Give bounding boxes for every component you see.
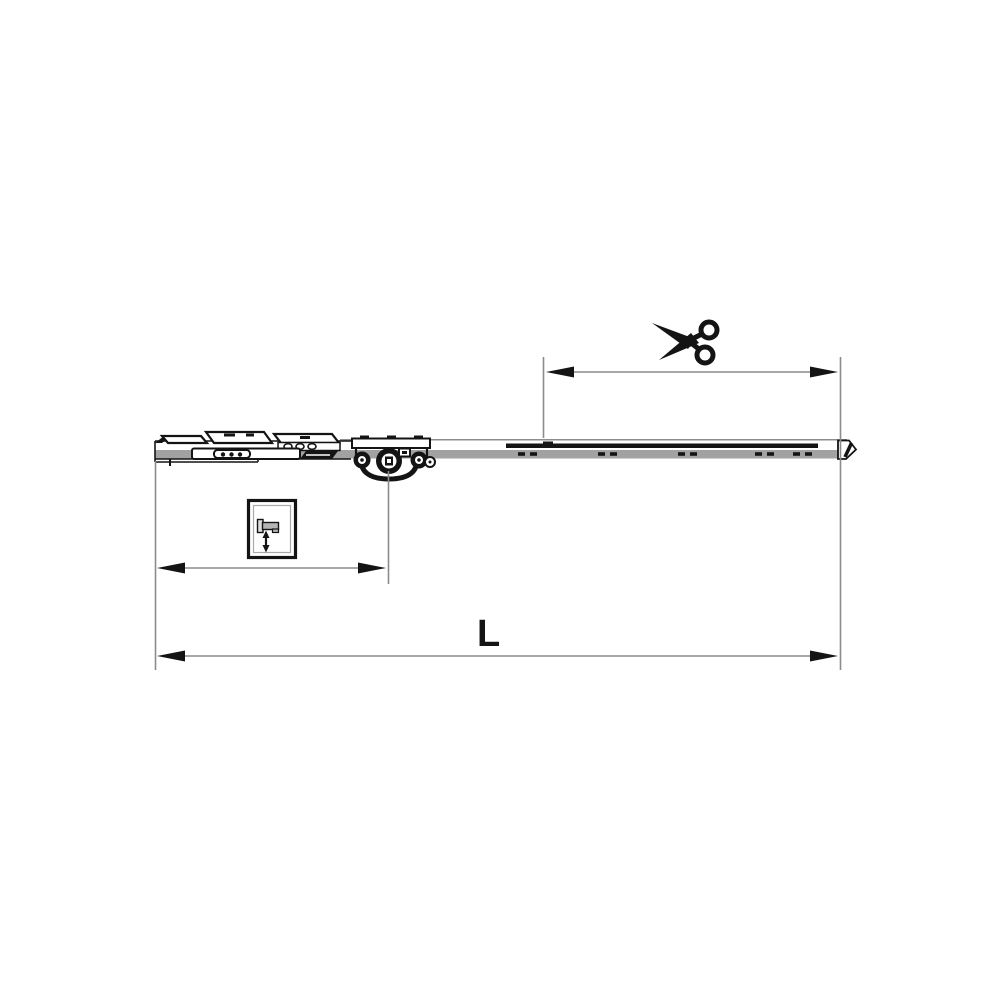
left-roller-pin: [360, 458, 364, 462]
center-cam-notch: [387, 459, 391, 463]
screw-slot: [793, 452, 800, 456]
right-roller-pin: [417, 458, 421, 462]
rivet: [229, 452, 233, 456]
cut-dim-left-arrowhead: [546, 367, 574, 378]
carriage-tab: [387, 436, 396, 440]
screw-slot: [678, 452, 685, 456]
side-roller-pin: [429, 461, 432, 464]
handle-grip-nub: [273, 529, 279, 533]
cut-dim-right-arrowhead: [810, 367, 838, 378]
roller-carriage: [352, 436, 435, 480]
scissors-icon: [652, 322, 717, 363]
handle-offset-dimension: [157, 563, 386, 574]
scissors-upper-ring: [701, 322, 717, 338]
screw-slot: [518, 452, 525, 456]
total-length-right-arrowhead: [810, 651, 838, 662]
diagram-canvas: L: [0, 0, 1000, 1000]
cut-length-dimension: [544, 357, 839, 445]
plate-mark: [224, 434, 235, 437]
cover-plate: [162, 436, 207, 443]
total-length-dimension: L: [157, 613, 838, 662]
handle-offset-right-arrowhead: [358, 563, 386, 574]
screw-slot: [598, 452, 605, 456]
scissors-lower-ring: [697, 347, 713, 363]
screw-slot: [805, 452, 812, 456]
rivet: [238, 452, 242, 456]
screw-slot: [690, 452, 697, 456]
technical-drawing: L: [0, 0, 1000, 1000]
rivet: [221, 452, 225, 456]
rail-extension-bar: [506, 444, 818, 449]
carriage-plate: [352, 439, 430, 449]
total-length-label: L: [477, 613, 500, 655]
screw-slot: [755, 452, 762, 456]
cam-pivot-dot: [387, 448, 392, 453]
plate-mark: [246, 434, 254, 437]
rail-extension-joint: [543, 442, 553, 445]
cover-plate: [206, 432, 272, 443]
hardware-rail: [155, 432, 856, 479]
handle-detail-box: [249, 501, 296, 558]
screw-slot: [610, 452, 617, 456]
total-length-left-arrowhead: [157, 651, 185, 662]
carriage-tab: [360, 436, 369, 440]
screw-slot: [767, 452, 774, 456]
lock-block-mark: [402, 451, 407, 454]
plate-mark: [300, 436, 310, 439]
screw-slot: [530, 452, 537, 456]
rivet-hole: [308, 444, 316, 450]
carriage-tab: [414, 436, 423, 440]
handle-offset-left-arrowhead: [157, 563, 185, 574]
